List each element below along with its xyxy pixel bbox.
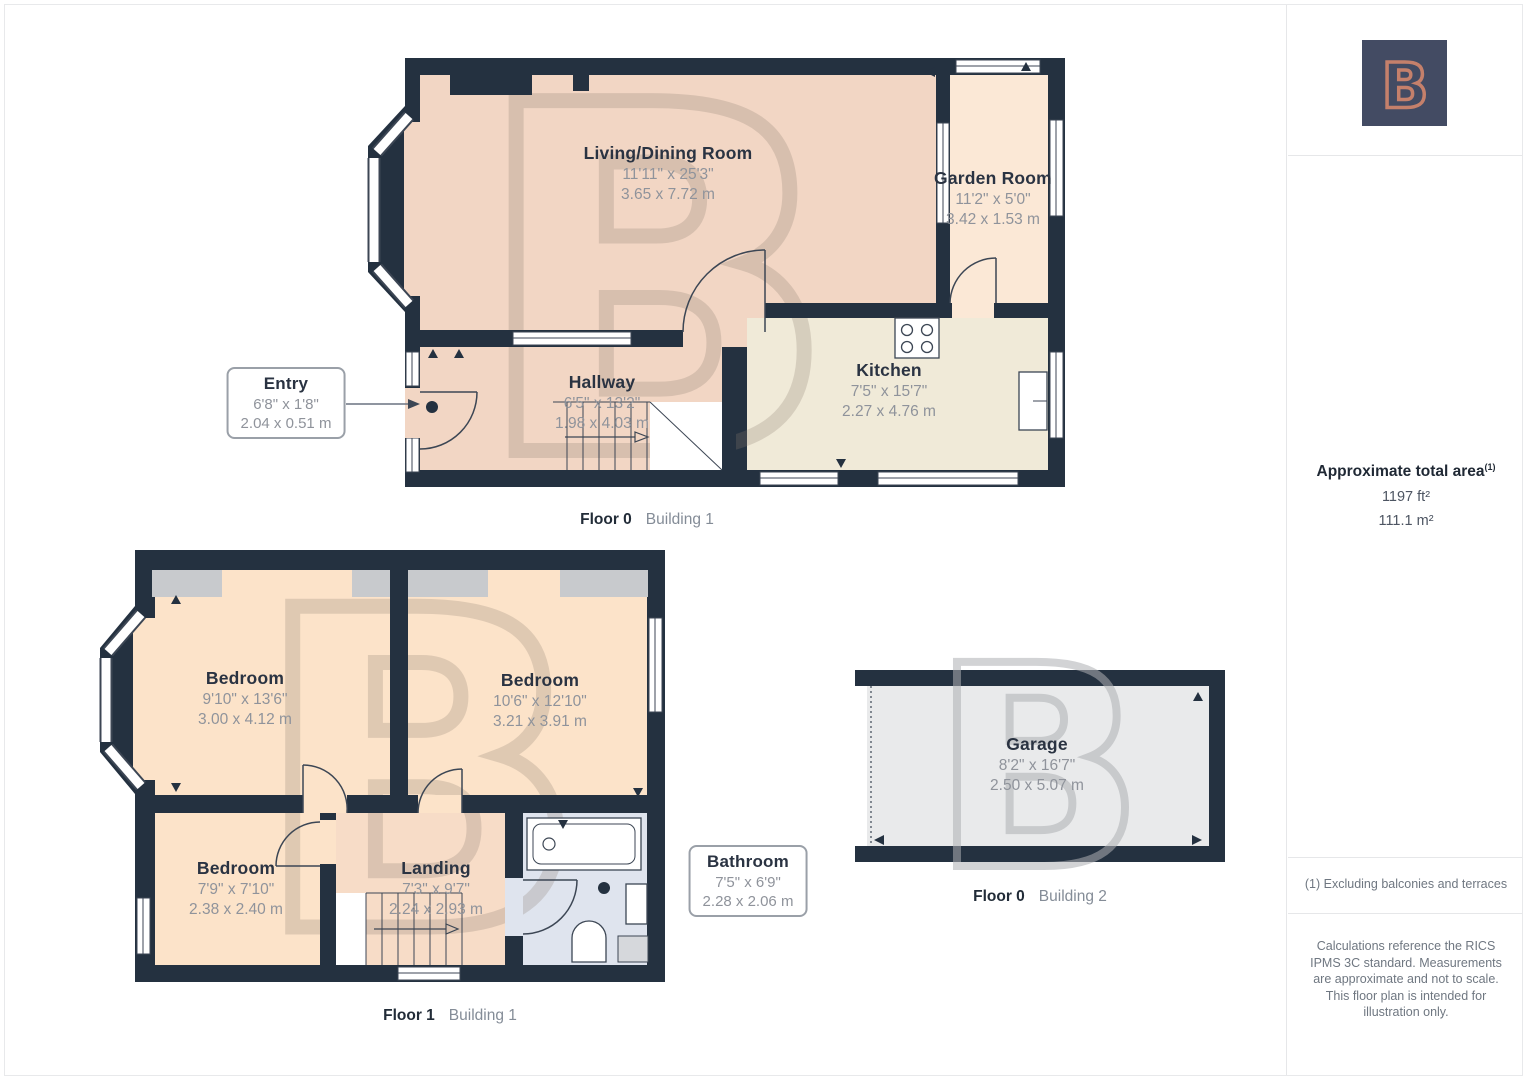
front-door-gap [405, 388, 420, 438]
sink-icon [1019, 372, 1047, 430]
room-label-bedroom2: Bedroom 10'6" x 12'10" 3.21 x 3.91 m [493, 670, 587, 731]
logo-b-letter: B [1381, 50, 1428, 123]
caption-floor0-building2: Floor 0Building 2 [973, 888, 1107, 906]
room-label-garage: Garage 8'2" x 16'7" 2.50 x 5.07 m [990, 734, 1084, 795]
bay-opening [404, 122, 421, 296]
entry-label-box: Entry 6'8" x 1'8" 2.04 x 0.51 m [227, 367, 346, 439]
area-heading: Approximate total area [1317, 463, 1485, 480]
bedroom1-door-gap [303, 795, 347, 813]
garage-right-wall [1209, 670, 1225, 862]
area-sqm: 111.1 m² [1296, 513, 1516, 529]
room-label-living: Living/Dining Room 11'11" x 25'3" 3.65 x… [584, 143, 753, 204]
room-label-bedroom1: Bedroom 9'10" x 13'6" 3.00 x 4.12 m [198, 668, 292, 729]
floorplan-floor0-building1: B [346, 6, 1065, 565]
caption-floor1-building1: Floor 1Building 1 [383, 1007, 517, 1025]
bathroom-window [618, 936, 648, 962]
sidebar-hdivider-2 [1288, 857, 1522, 858]
kitchen-top-wall [765, 303, 1065, 318]
entry-arrow [346, 399, 420, 409]
area-footnote-marker: (1) [1484, 462, 1495, 472]
bathtub-icon [527, 818, 641, 870]
door-point-bathroom [598, 882, 610, 894]
bathroom-door-gap [505, 878, 523, 936]
toilet-icon [572, 921, 606, 962]
door-point [426, 401, 438, 413]
room-label-garden: Garden Room 11'2" x 5'0" 3.42 x 1.53 m [934, 168, 1052, 229]
mid-wall-f1 [155, 795, 665, 813]
room-label-hallway: Hallway 6'5" x 13'2" 1.98 x 4.03 m [555, 372, 649, 433]
understair-wall [722, 377, 736, 470]
bedroom-divider-wall [390, 550, 408, 813]
bedroom2-door-gap [418, 795, 462, 813]
room-label-landing: Landing 7'3" x 9'7" 2.24 x 2.93 m [389, 858, 483, 919]
floorplan-floor1-building1: B [100, 519, 665, 1031]
room-label-bedroom3: Bedroom 7'9" x 7'10" 2.38 x 2.40 m [189, 858, 283, 919]
sidebar-hdivider-1 [1288, 155, 1522, 156]
chimney-breast [450, 75, 532, 95]
bedroom3-door-gap [320, 820, 336, 864]
garden-door-gap [952, 303, 994, 318]
approximate-total-area: Approximate total area(1) 1197 ft² 111.1… [1296, 462, 1516, 529]
bathroom-sink-icon [626, 884, 647, 924]
bathroom-label-box: Bathroom 7'5" x 6'9" 2.28 x 2.06 m [689, 845, 808, 917]
bay-opening-f1 [133, 618, 155, 780]
footnote: (1) Excluding balconies and terraces [1296, 877, 1516, 891]
sidebar-hdivider-3 [1288, 913, 1522, 914]
sidebar-divider [1286, 5, 1287, 1075]
wall-stub [573, 75, 589, 91]
disclaimer: Calculations reference the RICS IPMS 3C … [1303, 938, 1509, 1021]
stove-icon [895, 318, 939, 358]
brand-logo: B [1362, 40, 1447, 126]
floorplan-page: B [0, 0, 1527, 1080]
caption-floor0-building1: Floor 0Building 1 [580, 511, 714, 529]
area-sqft: 1197 ft² [1296, 489, 1516, 505]
room-label-kitchen: Kitchen 7'5" x 15'7" 2.27 x 4.76 m [842, 360, 936, 421]
